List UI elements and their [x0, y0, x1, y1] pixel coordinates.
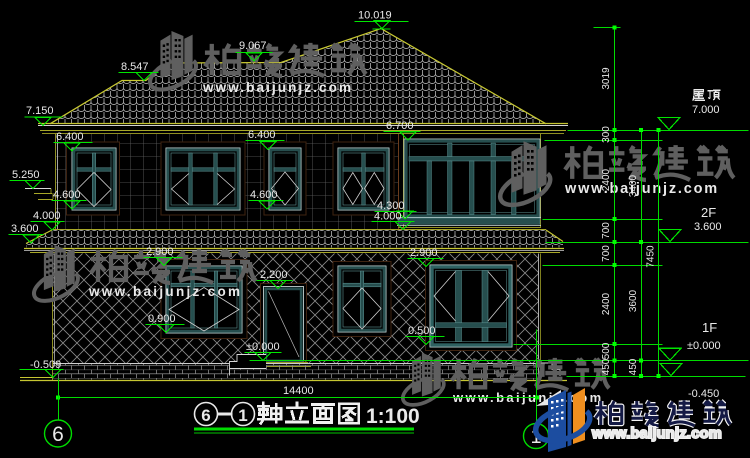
svg-text:7.000: 7.000: [692, 104, 720, 116]
svg-text:4.600: 4.600: [250, 189, 278, 201]
svg-text:2400: 2400: [601, 168, 612, 191]
svg-text:1:100: 1:100: [366, 405, 420, 428]
svg-text:9.067: 9.067: [239, 40, 267, 52]
svg-text:6.400: 6.400: [248, 129, 276, 141]
svg-text:2400: 2400: [601, 292, 612, 315]
svg-text:www.baijunjz.com: www.baijunjz.com: [202, 80, 353, 95]
svg-text:6: 6: [201, 406, 210, 425]
svg-text:700: 700: [601, 222, 612, 239]
svg-text:700: 700: [601, 245, 612, 262]
svg-text:0.900: 0.900: [148, 313, 176, 325]
svg-text:1F: 1F: [702, 320, 717, 335]
svg-text:3.600: 3.600: [694, 221, 722, 233]
svg-text:300: 300: [601, 126, 612, 143]
svg-text:2.900: 2.900: [410, 247, 438, 259]
svg-text:www.baijunjz.com: www.baijunjz.com: [591, 426, 722, 442]
svg-text:4.600: 4.600: [53, 189, 81, 201]
svg-text:4.000: 4.000: [33, 210, 61, 222]
svg-text:3.600: 3.600: [11, 223, 39, 235]
svg-text:6: 6: [52, 423, 64, 446]
svg-text:7.150: 7.150: [26, 105, 54, 117]
svg-text:3019: 3019: [601, 67, 612, 90]
svg-text:7450: 7450: [646, 245, 657, 268]
svg-text:2.200: 2.200: [260, 269, 288, 281]
svg-text:450: 450: [601, 358, 612, 375]
svg-text:10.019: 10.019: [358, 10, 392, 22]
svg-text:-0.450: -0.450: [688, 388, 719, 400]
svg-text:3600: 3600: [628, 289, 639, 312]
svg-text:500: 500: [601, 342, 612, 359]
svg-text:2.900: 2.900: [146, 246, 174, 258]
svg-text:8.547: 8.547: [121, 61, 149, 73]
svg-text:2F: 2F: [701, 205, 716, 220]
svg-text:±0.000: ±0.000: [246, 341, 280, 353]
svg-text:0.500: 0.500: [408, 325, 436, 337]
svg-text:±0.000: ±0.000: [687, 340, 721, 352]
svg-text:3400: 3400: [628, 174, 639, 197]
svg-text:4.000: 4.000: [374, 211, 402, 223]
svg-text:6.400: 6.400: [56, 131, 84, 143]
svg-text:450: 450: [628, 358, 639, 375]
svg-text:5.250: 5.250: [12, 169, 40, 181]
svg-text:-0.509: -0.509: [30, 359, 61, 371]
svg-text:1: 1: [238, 406, 247, 425]
svg-text:14400: 14400: [283, 385, 314, 397]
svg-text:www.baijunjz.com: www.baijunjz.com: [88, 284, 242, 299]
svg-text:6.700: 6.700: [386, 120, 414, 132]
